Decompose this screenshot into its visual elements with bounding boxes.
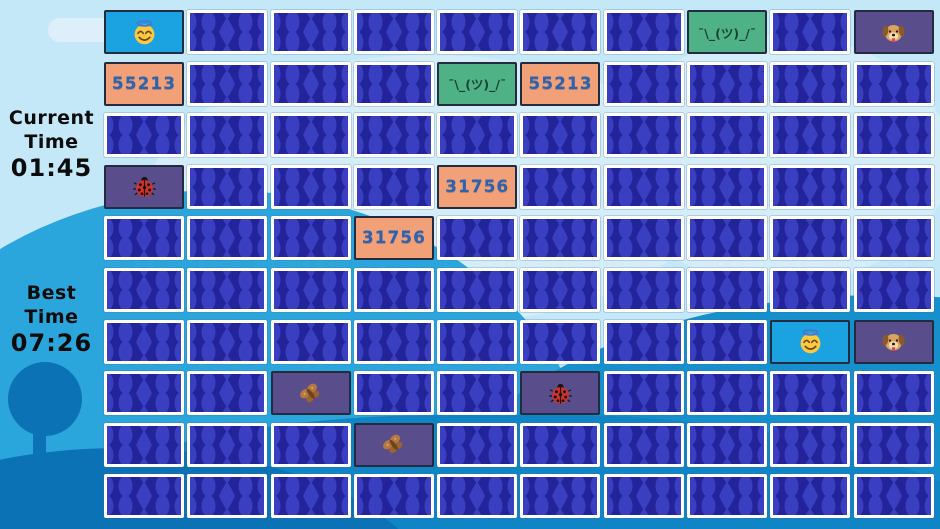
card-r10-c3[interactable] [271,474,351,518]
card-r4-c1[interactable] [104,165,184,209]
card-r10-c1[interactable] [104,474,184,518]
card-back-pattern [690,477,764,515]
card-r10-c10[interactable] [854,474,934,518]
card-r3-c8[interactable] [687,113,767,157]
card-back-pattern [107,323,181,361]
card-back-pattern [523,116,597,154]
current-time-panel: Current Time 01:45 [0,106,103,183]
card-back-pattern [857,271,931,309]
card-r8-c7[interactable] [604,371,684,415]
card-r5-c7[interactable] [604,216,684,260]
card-back-pattern [607,116,681,154]
card-r1-c4[interactable] [354,10,434,54]
card-r2-c10[interactable] [854,62,934,106]
card-r6-c7[interactable] [604,268,684,312]
shrug-kaomoji: ¯\_(ツ)_/¯ [698,23,756,42]
halo-face-icon [131,19,158,46]
card-back-pattern [274,168,348,206]
card-r10-c6[interactable] [520,474,600,518]
card-r8-c10[interactable] [854,371,934,415]
card-r4-c6[interactable] [520,165,600,209]
card-r9-c5[interactable] [437,423,517,467]
card-back-pattern [357,374,431,412]
card-r5-c3[interactable] [271,216,351,260]
best-time-value: 07:26 [0,329,103,358]
card-r3-c3[interactable] [271,113,351,157]
card-back-pattern [607,477,681,515]
card-r4-c3[interactable] [271,165,351,209]
card-r3-c6[interactable] [520,113,600,157]
card-number: 55213 [112,74,176,94]
card-r7-c4[interactable] [354,320,434,364]
card-back-pattern [440,426,514,464]
card-r3-c7[interactable] [604,113,684,157]
card-back-pattern [690,219,764,257]
current-time-value: 01:45 [0,154,103,183]
card-r5-c5[interactable] [437,216,517,260]
card-r9-c10[interactable] [854,423,934,467]
card-r2-c3[interactable] [271,62,351,106]
game-board: Current Time 01:45 Best Time 07:26 ¯\_(ツ… [0,0,940,529]
ladybug-icon [131,173,158,200]
card-r5-c6[interactable] [520,216,600,260]
card-back-pattern [607,271,681,309]
shrug-kaomoji: ¯\_(ツ)_/¯ [448,74,506,93]
card-back-pattern [274,271,348,309]
card-r8-c9[interactable] [770,371,850,415]
card-back-pattern [190,116,264,154]
card-back-pattern [773,65,847,103]
current-time-label-line1: Current [0,106,103,130]
card-back-pattern [523,323,597,361]
card-r10-c9[interactable] [770,474,850,518]
card-r5-c2[interactable] [187,216,267,260]
card-back-pattern [440,13,514,51]
best-time-label-line2: Time [0,305,103,329]
current-time-label-line2: Time [0,130,103,154]
card-back-pattern [274,65,348,103]
card-back-pattern [523,271,597,309]
card-r8-c5[interactable] [437,371,517,415]
card-number: 55213 [528,74,592,94]
card-r8-c1[interactable] [104,371,184,415]
card-back-pattern [773,116,847,154]
card-back-pattern [607,13,681,51]
card-r6-c4[interactable] [354,268,434,312]
card-back-pattern [440,116,514,154]
card-back-pattern [274,219,348,257]
card-r9-c3[interactable] [271,423,351,467]
card-r4-c10[interactable] [854,165,934,209]
card-r2-c2[interactable] [187,62,267,106]
card-r7-c6[interactable] [520,320,600,364]
dog-icon [880,19,907,46]
card-back-pattern [107,426,181,464]
card-back-pattern [190,65,264,103]
card-r7-c1[interactable] [104,320,184,364]
card-back-pattern [690,65,764,103]
card-back-pattern [274,13,348,51]
card-back-pattern [773,271,847,309]
card-back-pattern [357,65,431,103]
card-r10-c4[interactable] [354,474,434,518]
card-r6-c9[interactable] [770,268,850,312]
card-back-pattern [690,374,764,412]
card-back-pattern [440,374,514,412]
card-r6-c1[interactable] [104,268,184,312]
card-r1-c1[interactable] [104,10,184,54]
card-back-pattern [190,219,264,257]
card-r8-c6[interactable] [520,371,600,415]
card-back-pattern [190,323,264,361]
card-r10-c5[interactable] [437,474,517,518]
card-r9-c8[interactable] [687,423,767,467]
card-r6-c5[interactable] [437,268,517,312]
card-back-pattern [190,477,264,515]
card-r1-c10[interactable] [854,10,934,54]
card-back-pattern [107,116,181,154]
card-r8-c3[interactable] [271,371,351,415]
card-back-pattern [190,426,264,464]
card-back-pattern [274,323,348,361]
card-back-pattern [190,374,264,412]
card-back-pattern [690,323,764,361]
card-r5-c4[interactable]: 31756 [354,216,434,260]
card-r9-c9[interactable] [770,423,850,467]
card-back-pattern [107,271,181,309]
card-r4-c9[interactable] [770,165,850,209]
card-r3-c5[interactable] [437,113,517,157]
card-r1-c9[interactable] [770,10,850,54]
card-back-pattern [190,168,264,206]
card-back-pattern [357,13,431,51]
card-r7-c9[interactable] [770,320,850,364]
card-back-pattern [190,13,264,51]
card-r10-c7[interactable] [604,474,684,518]
card-r1-c5[interactable] [437,10,517,54]
ladybug-icon [547,380,574,407]
card-r2-c4[interactable] [354,62,434,106]
card-back-pattern [107,477,181,515]
card-back-pattern [690,168,764,206]
card-back-pattern [274,426,348,464]
card-r7-c5[interactable] [437,320,517,364]
card-r3-c10[interactable] [854,113,934,157]
card-back-pattern [523,13,597,51]
card-r7-c10[interactable] [854,320,934,364]
card-r4-c2[interactable] [187,165,267,209]
card-back-pattern [357,477,431,515]
card-back-pattern [857,65,931,103]
card-r2-c5[interactable]: ¯\_(ツ)_/¯ [437,62,517,106]
card-r3-c2[interactable] [187,113,267,157]
card-back-pattern [690,116,764,154]
card-back-pattern [607,219,681,257]
moth-icon [380,431,407,458]
card-r1-c2[interactable] [187,10,267,54]
card-r5-c9[interactable] [770,216,850,260]
card-back-pattern [107,219,181,257]
card-back-pattern [773,477,847,515]
card-r10-c2[interactable] [187,474,267,518]
card-r2-c8[interactable] [687,62,767,106]
card-back-pattern [857,219,931,257]
dog-icon [880,328,907,355]
card-back-pattern [773,13,847,51]
card-back-pattern [357,168,431,206]
card-r2-c1[interactable]: 55213 [104,62,184,106]
card-r7-c7[interactable] [604,320,684,364]
card-r7-c8[interactable] [687,320,767,364]
card-r9-c7[interactable] [604,423,684,467]
card-back-pattern [523,477,597,515]
card-r4-c5[interactable]: 31756 [437,165,517,209]
best-time-label-line1: Best [0,281,103,305]
card-back-pattern [857,477,931,515]
card-r2-c6[interactable]: 55213 [520,62,600,106]
card-back-pattern [523,168,597,206]
card-r7-c2[interactable] [187,320,267,364]
card-back-pattern [607,168,681,206]
card-r3-c9[interactable] [770,113,850,157]
card-r3-c4[interactable] [354,113,434,157]
card-r6-c6[interactable] [520,268,600,312]
card-back-pattern [440,323,514,361]
card-back-pattern [357,271,431,309]
card-back-pattern [857,116,931,154]
card-back-pattern [607,374,681,412]
card-back-pattern [607,323,681,361]
card-back-pattern [773,219,847,257]
moth-icon [297,380,324,407]
card-r6-c3[interactable] [271,268,351,312]
card-number: 31756 [445,177,509,197]
card-r5-c10[interactable] [854,216,934,260]
card-r2-c9[interactable] [770,62,850,106]
card-r10-c8[interactable] [687,474,767,518]
card-back-pattern [440,477,514,515]
card-r3-c1[interactable] [104,113,184,157]
card-back-pattern [523,426,597,464]
card-r1-c8[interactable]: ¯\_(ツ)_/¯ [687,10,767,54]
card-back-pattern [690,271,764,309]
best-time-panel: Best Time 07:26 [0,281,103,358]
card-back-pattern [523,219,597,257]
card-back-pattern [440,219,514,257]
card-back-pattern [773,374,847,412]
card-r1-c7[interactable] [604,10,684,54]
card-r4-c7[interactable] [604,165,684,209]
card-back-pattern [857,374,931,412]
card-r9-c6[interactable] [520,423,600,467]
card-r9-c4[interactable] [354,423,434,467]
card-back-pattern [857,426,931,464]
card-r8-c4[interactable] [354,371,434,415]
card-back-pattern [107,374,181,412]
card-r6-c10[interactable] [854,268,934,312]
card-back-pattern [274,116,348,154]
card-back-pattern [773,426,847,464]
card-r2-c7[interactable] [604,62,684,106]
card-back-pattern [440,271,514,309]
card-back-pattern [357,116,431,154]
card-r9-c1[interactable] [104,423,184,467]
card-r7-c3[interactable] [271,320,351,364]
card-back-pattern [857,168,931,206]
card-back-pattern [190,271,264,309]
card-back-pattern [690,426,764,464]
card-r1-c3[interactable] [271,10,351,54]
card-r5-c1[interactable] [104,216,184,260]
halo-face-icon [797,328,824,355]
card-number: 31756 [362,228,426,248]
card-r9-c2[interactable] [187,423,267,467]
card-r8-c2[interactable] [187,371,267,415]
card-grid: ¯\_(ツ)_/¯55213¯\_(ツ)_/¯552133175631756 [104,10,934,518]
card-back-pattern [607,426,681,464]
card-r1-c6[interactable] [520,10,600,54]
card-back-pattern [274,477,348,515]
card-r4-c8[interactable] [687,165,767,209]
card-r5-c8[interactable] [687,216,767,260]
card-back-pattern [773,168,847,206]
card-r8-c8[interactable] [687,371,767,415]
card-r6-c2[interactable] [187,268,267,312]
card-r4-c4[interactable] [354,165,434,209]
card-back-pattern [607,65,681,103]
card-r6-c8[interactable] [687,268,767,312]
card-back-pattern [357,323,431,361]
